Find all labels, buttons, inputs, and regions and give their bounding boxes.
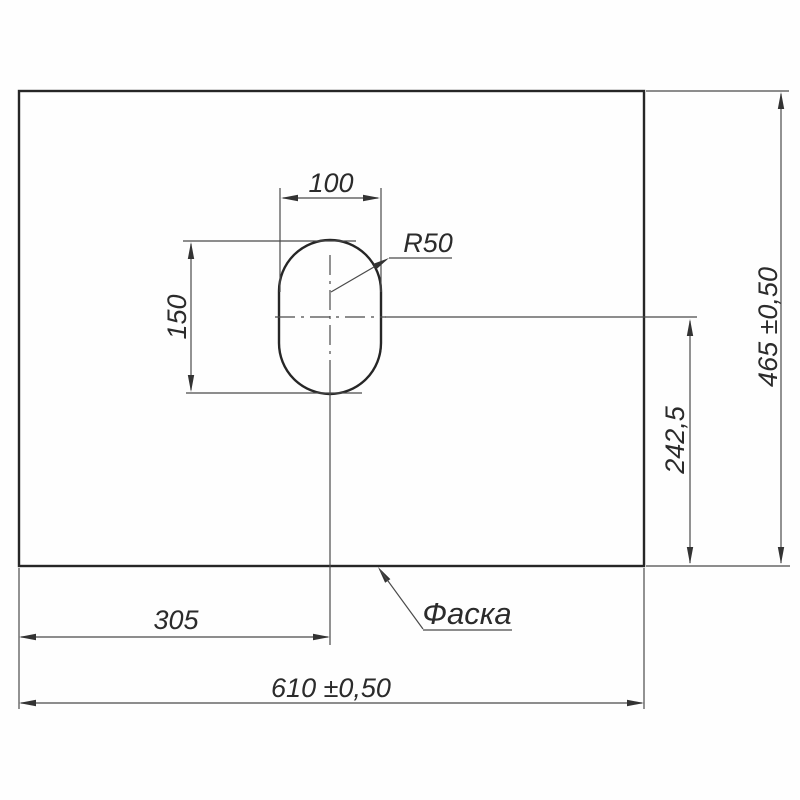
arrowhead-up [778, 92, 784, 109]
dim-text-panel-width: 610 ±0,50 [271, 673, 391, 703]
arrowhead-left [19, 634, 36, 640]
arrowhead-left [281, 195, 298, 201]
arrowhead-down [188, 375, 194, 392]
panel-outline [19, 91, 644, 566]
arrowhead-down [778, 547, 784, 564]
arrowhead-up [188, 242, 194, 259]
dim-text-hole-radius: R50 [403, 228, 453, 258]
arrowhead-right [313, 634, 330, 640]
dim-text-panel-height: 465 ±0,50 [753, 267, 783, 387]
chamfer-note-text: Фаска [422, 596, 511, 631]
dim-text-hole-width: 100 [308, 168, 353, 198]
arrowhead-right [627, 700, 644, 706]
drawing-canvas: 100 150 R50 242,5 465 ±0,50 305 610 ±0,5 [0, 0, 800, 800]
engineering-drawing: 100 150 R50 242,5 465 ±0,50 305 610 ±0,5 [0, 0, 800, 800]
arrowhead-left [19, 700, 36, 706]
arrowhead-down [687, 547, 693, 564]
dim-text-center-from-bottom: 242,5 [660, 405, 690, 475]
arrowhead-up [687, 319, 693, 336]
arrowhead-radius [373, 255, 391, 269]
dim-text-hole-height: 150 [162, 294, 192, 339]
arrowhead-right [363, 195, 380, 201]
chamfer-leader-line [380, 570, 423, 629]
dim-text-hole-offset: 305 [153, 605, 199, 635]
